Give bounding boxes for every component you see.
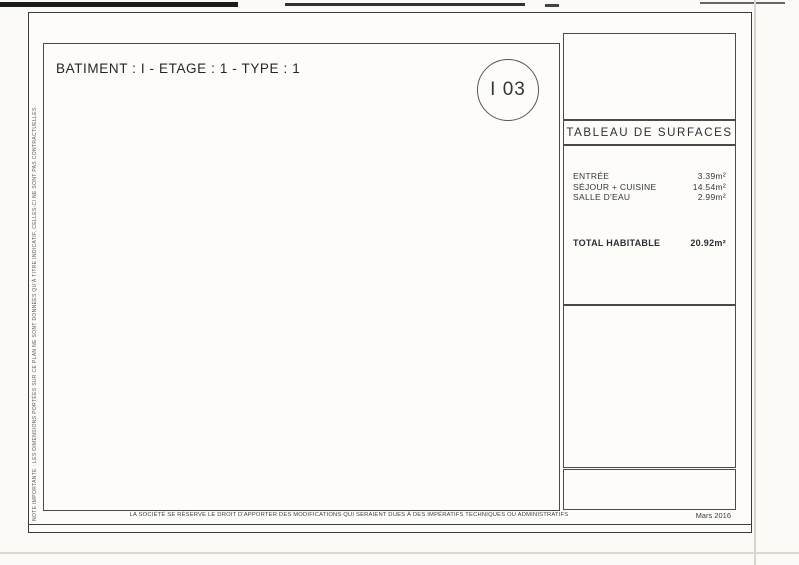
unit-badge-label: I 03: [490, 79, 526, 101]
site-plan-box: [563, 304, 736, 468]
total-row: TOTAL HABITABLE 20.92m²: [573, 238, 726, 248]
plan-panel: [43, 43, 560, 511]
surface-rows: ENTRÉE 3.39m² SÉJOUR + CUISINE 14.54m² S…: [573, 171, 726, 203]
scan-page-edge: [0, 552, 799, 554]
scan-page-edge: [754, 0, 756, 565]
table-row: SALLE D'EAU 2.99m²: [573, 192, 726, 203]
unit-badge: I 03: [477, 59, 539, 121]
scan-artifact: [0, 2, 238, 7]
plan-title: BATIMENT : I - ETAGE : 1 - TYPE : 1: [56, 61, 300, 76]
side-note: NOTE IMPORTANTE : LES DIMENSIONS PORTÉES…: [32, 91, 38, 521]
table-row: ENTRÉE 3.39m²: [573, 171, 726, 182]
scan-artifact: [285, 3, 525, 6]
scan-artifact: [700, 2, 785, 4]
footer-date: Mars 2016: [696, 511, 731, 520]
total-value: 20.92m²: [690, 238, 726, 248]
footer-disclaimer: LA SOCIÉTÉ SE RÉSERVE LE DROIT D'APPORTE…: [89, 512, 609, 518]
right-bottom-box: [563, 469, 736, 510]
room-area: 3.39m²: [698, 171, 726, 182]
room-area: 14.54m²: [693, 182, 726, 193]
surface-table: ENTRÉE 3.39m² SÉJOUR + CUISINE 14.54m² S…: [563, 144, 736, 306]
surface-table-title: TABLEAU DE SURFACES: [566, 127, 732, 139]
surface-table-header: TABLEAU DE SURFACES: [563, 119, 736, 146]
sheet-border: NOTE IMPORTANTE : LES DIMENSIONS PORTÉES…: [28, 12, 752, 533]
room-area: 2.99m²: [698, 192, 726, 203]
total-label: TOTAL HABITABLE: [573, 238, 660, 248]
right-top-box: [563, 33, 736, 121]
room-name: ENTRÉE: [573, 171, 609, 182]
room-name: SÉJOUR + CUISINE: [573, 182, 656, 193]
scan-artifact: [545, 4, 559, 7]
room-name: SALLE D'EAU: [573, 192, 630, 203]
table-row: SÉJOUR + CUISINE 14.54m²: [573, 182, 726, 193]
plan-sheet: NORD: [0, 0, 799, 565]
footer-rule: [29, 524, 751, 525]
